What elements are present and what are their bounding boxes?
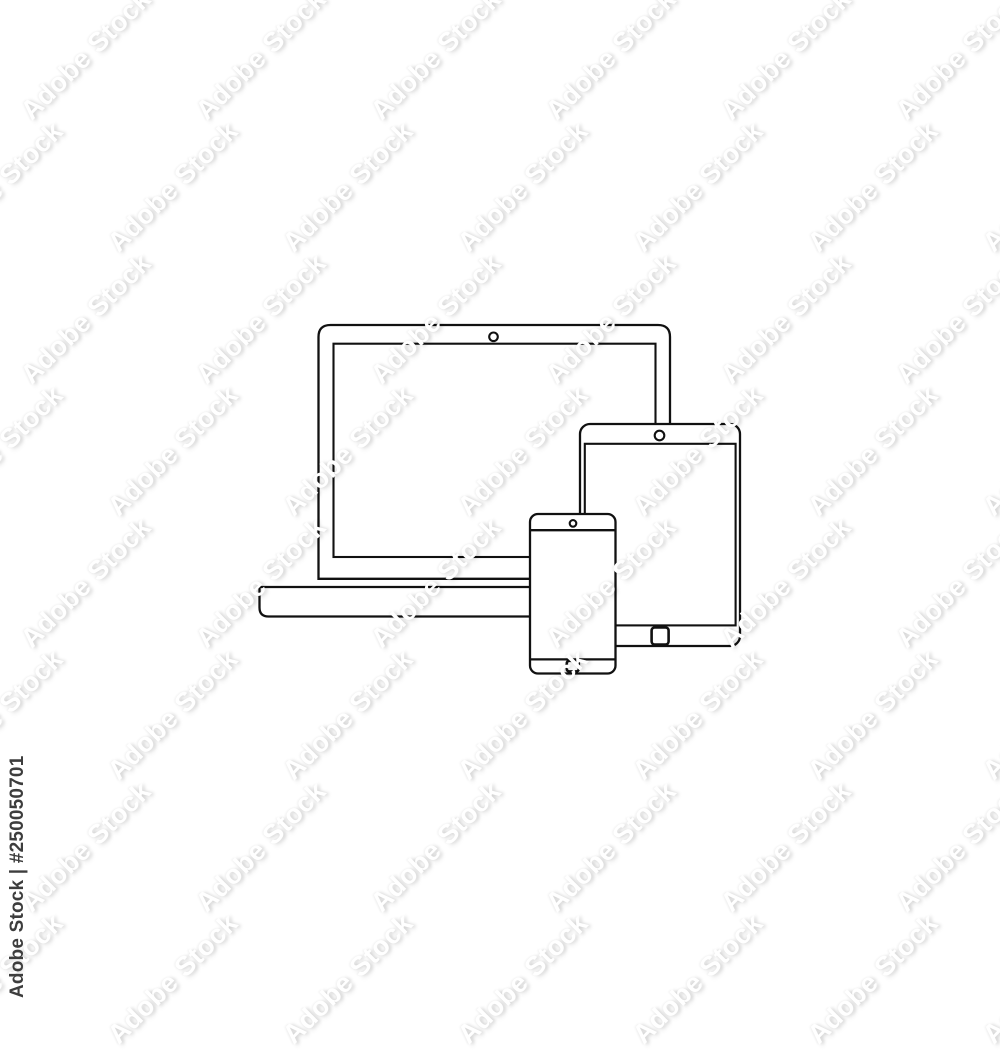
tablet-camera-dot-icon	[655, 431, 665, 441]
smartphone-icon	[530, 514, 616, 674]
laptop-camera-dot-icon	[489, 333, 498, 342]
phone-camera-dot-icon	[570, 520, 577, 527]
laptop-base	[260, 587, 561, 617]
stock-id-label: Adobe Stock | #250050701	[7, 756, 29, 998]
phone-home-button-icon	[567, 661, 579, 672]
stock-image-canvas: Adobe StockAdobe StockAdobe StockAdobe S…	[0, 0, 1000, 1000]
responsive-devices-icon	[0, 0, 1000, 1000]
phone-body-outline	[530, 514, 616, 674]
tablet-home-button-icon	[652, 627, 669, 644]
